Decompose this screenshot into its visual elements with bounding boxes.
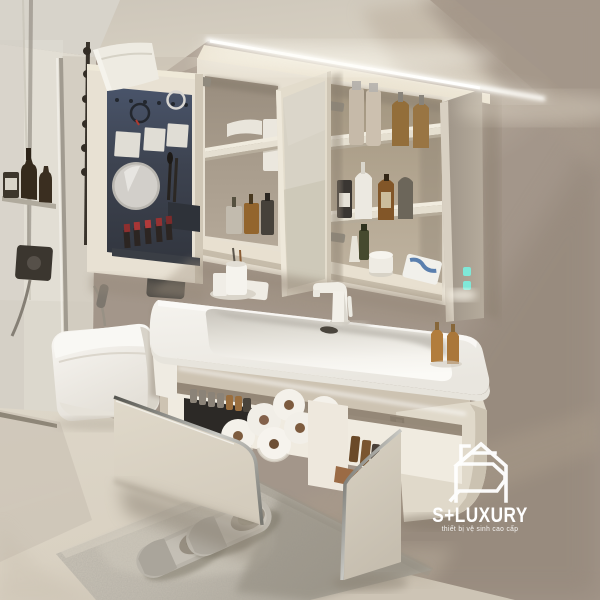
svg-text:S+LUXURY: S+LUXURY bbox=[432, 505, 528, 528]
svg-text:thiết bị vệ sinh cao cấp: thiết bị vệ sinh cao cấp bbox=[442, 524, 519, 533]
